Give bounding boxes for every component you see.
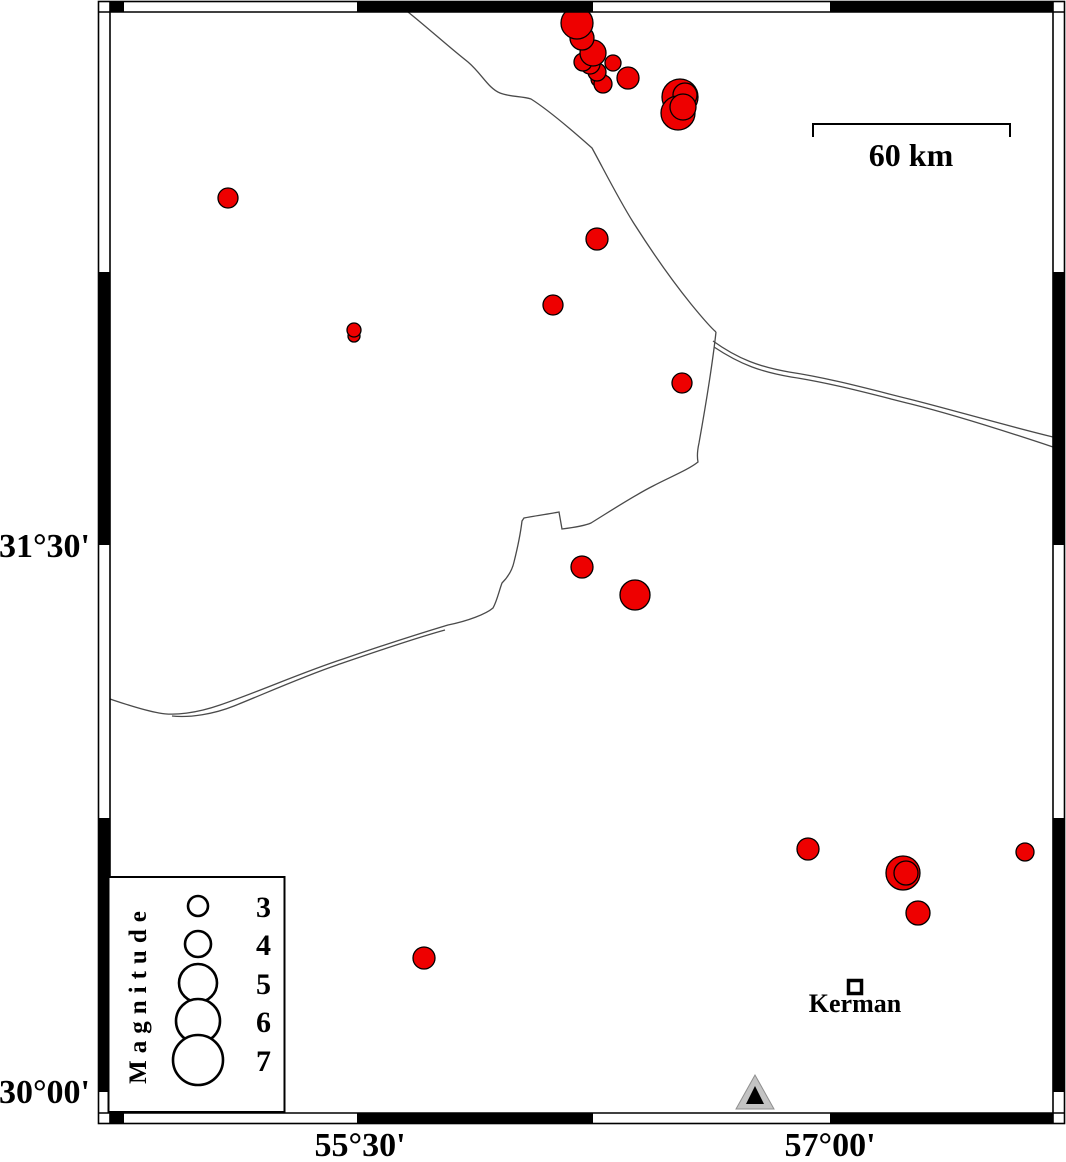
frame-segment (830, 1113, 1053, 1124)
map-line (713, 341, 1053, 437)
scale-bar-label: 60 km (869, 137, 954, 173)
epicenter-marker (906, 901, 930, 925)
legend-magnitude-circle (173, 1035, 223, 1085)
frame-segment (1053, 272, 1065, 545)
legend-magnitude-label: 4 (256, 929, 271, 962)
epicenter-marker (672, 373, 692, 393)
scale-bar-bracket (813, 124, 1010, 137)
epicenter-marker (1016, 843, 1034, 861)
legend-magnitude-circle (185, 931, 211, 957)
epicenter-marker (670, 94, 696, 120)
epicenter-marker (894, 861, 918, 885)
map-line (110, 332, 716, 714)
epicenter-marker (218, 188, 238, 208)
legend-magnitude-label: 6 (256, 1006, 271, 1039)
epicenter-marker (543, 295, 563, 315)
epicenter-marker (347, 323, 361, 337)
city-marker-kerman: Kerman (809, 981, 902, 1019)
city-label: Kerman (809, 989, 902, 1018)
seismicity-map-figure: 60 km Kerman Magnitude 34567 31°30' 30°0… (0, 0, 1066, 1162)
station-triangle-icon (736, 1075, 774, 1109)
epicenter-marker (413, 947, 435, 969)
legend-magnitude-label: 7 (256, 1045, 271, 1078)
frame-segment (830, 1, 1053, 12)
frame-segment (110, 1113, 124, 1124)
epicenter-marker (797, 838, 819, 860)
epicenter-marker (620, 580, 650, 610)
legend-magnitude-circle (179, 964, 217, 1002)
frame-segment (1053, 818, 1065, 1092)
lat-label-30-00: 30°00' (0, 1074, 90, 1111)
epicenter-marker (617, 67, 639, 89)
magnitude-legend: Magnitude 34567 (109, 877, 285, 1112)
legend-magnitude-label: 3 (256, 891, 271, 924)
map-line (408, 12, 716, 332)
legend-magnitude-circle (188, 896, 208, 916)
legend-magnitude-label: 5 (256, 968, 271, 1001)
map-lines-layer (110, 12, 1053, 717)
lon-label-55-30: 55°30' (314, 1127, 405, 1162)
frame-segment (357, 1, 593, 12)
legend-title: Magnitude (125, 904, 152, 1084)
map-canvas: 60 km Kerman Magnitude 34567 31°30' 30°0… (0, 0, 1066, 1162)
map-line (172, 630, 445, 717)
epicenter-marker (586, 228, 608, 250)
scale-bar: 60 km (813, 124, 1010, 173)
frame-segment (98, 272, 110, 545)
map-line (714, 347, 1053, 447)
epicenter-marker (605, 55, 621, 71)
frame-segment (357, 1113, 593, 1124)
epicenter-marker (571, 556, 593, 578)
frame-segment (110, 1, 124, 12)
lon-label-57-00: 57°00' (784, 1127, 875, 1162)
lat-label-31-30: 31°30' (0, 528, 90, 565)
